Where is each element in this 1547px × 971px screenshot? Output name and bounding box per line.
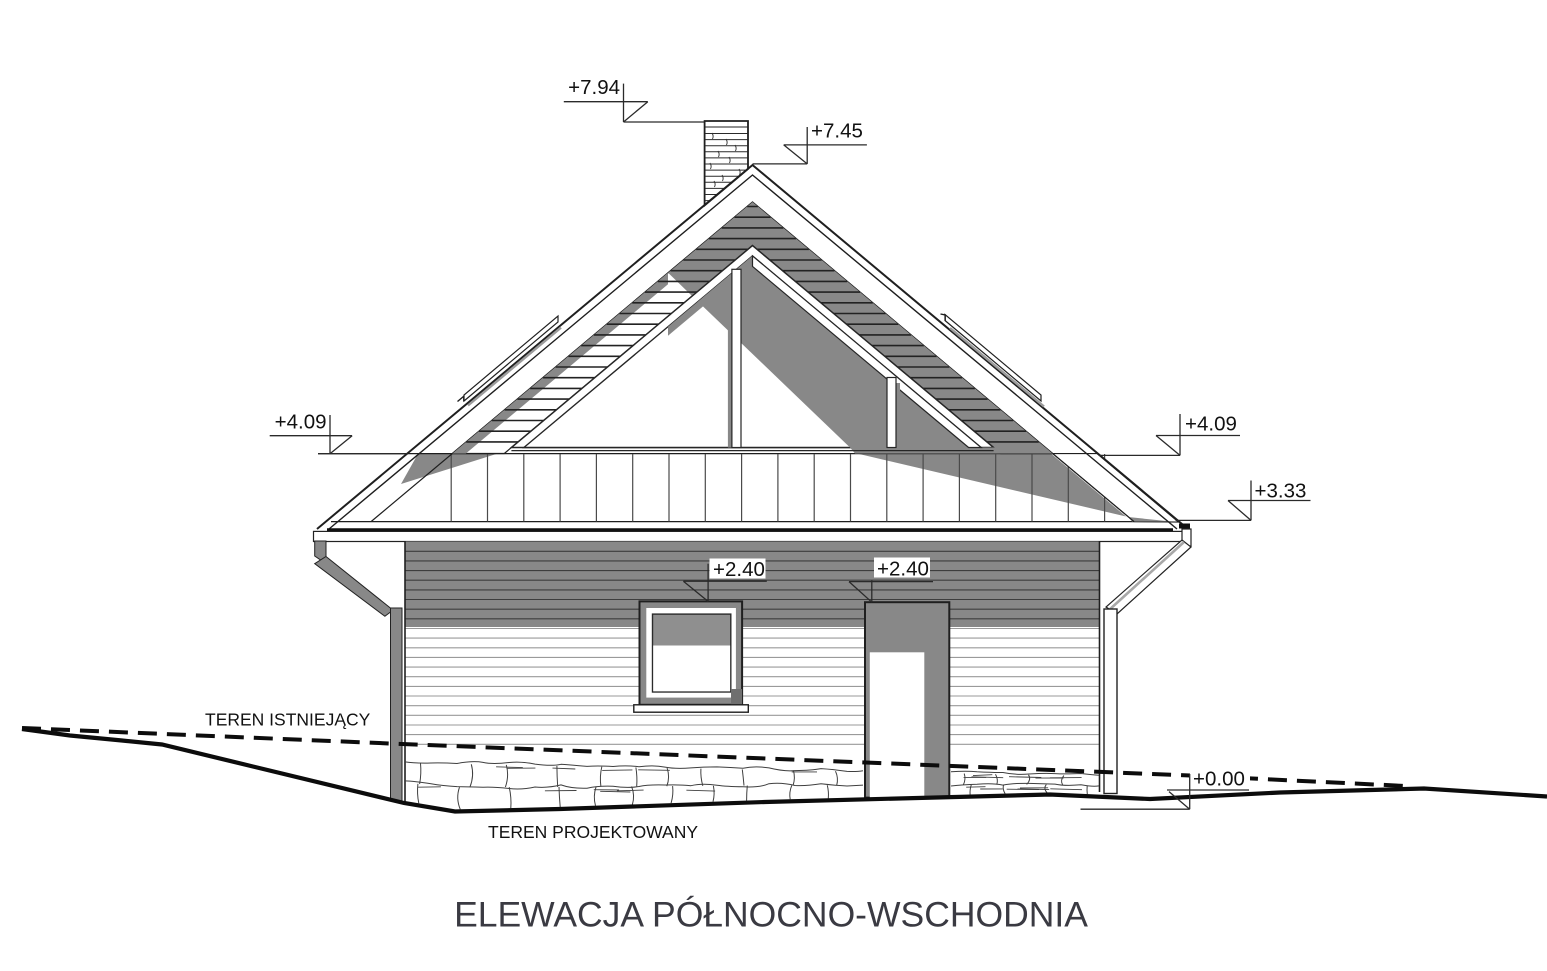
svg-text:+0.00: +0.00 — [1193, 768, 1245, 791]
svg-text:+7.94: +7.94 — [568, 76, 620, 99]
svg-text:+3.33: +3.33 — [1255, 480, 1307, 503]
svg-text:+7.45: +7.45 — [811, 120, 863, 143]
svg-text:+2.40: +2.40 — [877, 558, 929, 581]
svg-text:ELEWACJA PÓŁNOCNO-WSCHODNIA: ELEWACJA PÓŁNOCNO-WSCHODNIA — [454, 895, 1088, 935]
svg-text:+4.09: +4.09 — [275, 411, 327, 434]
svg-text:+4.09: +4.09 — [1185, 413, 1237, 436]
svg-text:+2.40: +2.40 — [713, 558, 765, 581]
svg-text:TEREN ISTNIEJĄCY: TEREN ISTNIEJĄCY — [205, 710, 371, 730]
svg-text:TEREN PROJEKTOWANY: TEREN PROJEKTOWANY — [488, 822, 698, 842]
